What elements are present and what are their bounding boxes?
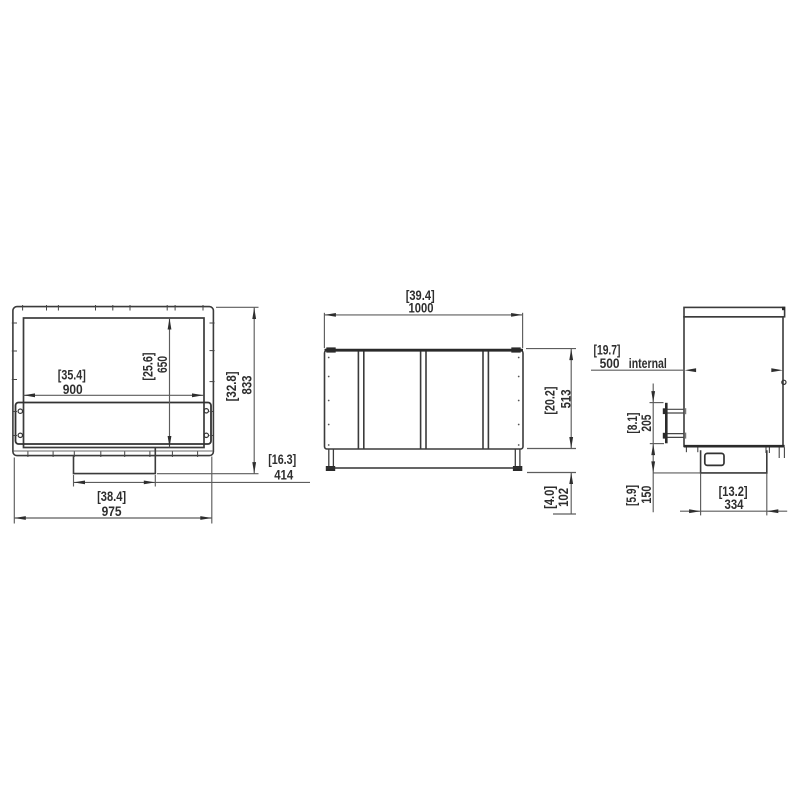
svg-text:513: 513 <box>557 389 573 408</box>
svg-text:102: 102 <box>555 488 571 507</box>
svg-text:500: 500 <box>600 355 620 371</box>
svg-text:internal: internal <box>629 355 667 371</box>
svg-text:[16.3]: [16.3] <box>268 451 296 467</box>
svg-text:900: 900 <box>63 381 83 397</box>
svg-text:205: 205 <box>638 414 654 431</box>
svg-text:[25.6]: [25.6] <box>139 353 155 381</box>
svg-text:[38.4]: [38.4] <box>97 488 126 504</box>
svg-text:1000: 1000 <box>409 300 434 316</box>
svg-text:975: 975 <box>102 503 122 519</box>
svg-text:[20.2]: [20.2] <box>541 387 557 415</box>
svg-text:414: 414 <box>274 467 293 483</box>
svg-text:650: 650 <box>154 356 170 373</box>
svg-text:[5.9]: [5.9] <box>623 485 639 506</box>
svg-text:833: 833 <box>238 375 254 394</box>
svg-text:150: 150 <box>638 485 654 503</box>
svg-text:334: 334 <box>725 496 744 512</box>
svg-text:[32.8]: [32.8] <box>223 371 239 401</box>
